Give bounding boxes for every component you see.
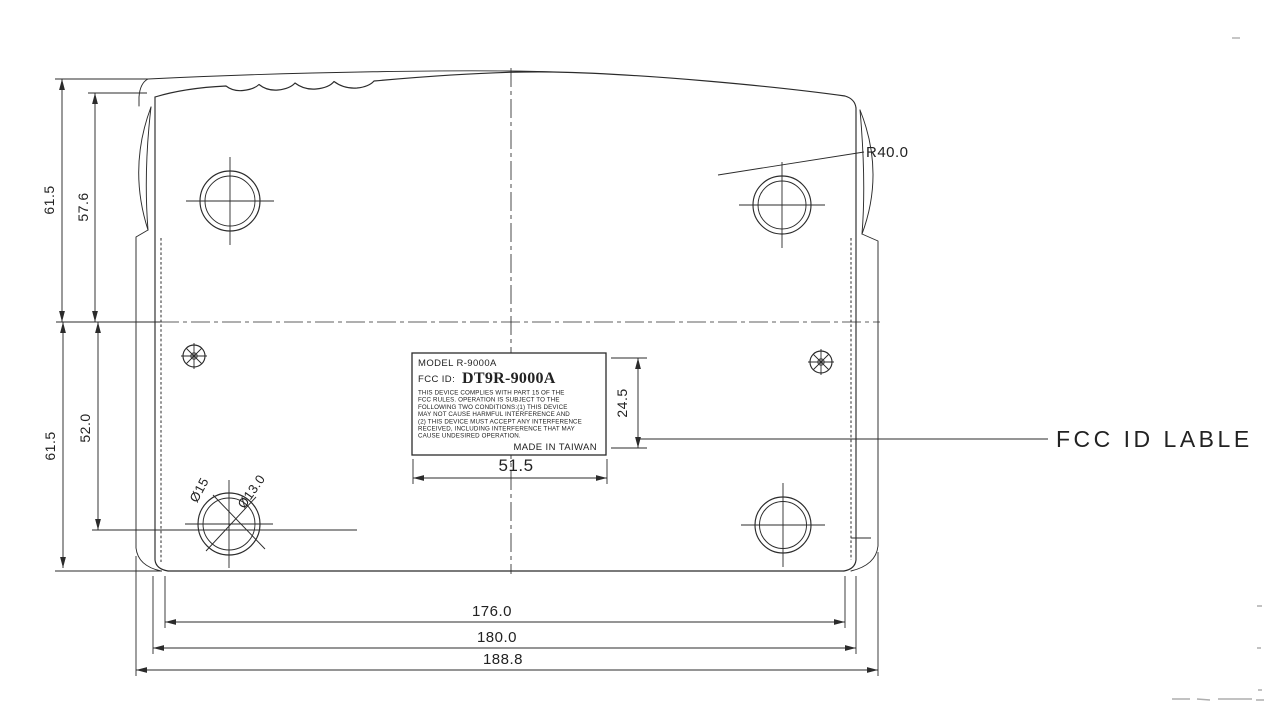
- fcc-id-label: MODEL R-9000A FCC ID: DT9R-9000A THIS DE…: [412, 353, 606, 455]
- label-compliance-line: THIS DEVICE COMPLIES WITH PART 15 OF THE: [418, 390, 565, 397]
- dimension-text: 188.8: [483, 651, 523, 668]
- corner-radius-callout: R40.0: [718, 144, 909, 175]
- foot-boss-top-right: [739, 162, 825, 248]
- dimension-text: 176.0: [472, 603, 512, 620]
- scan-artifacts: [1172, 38, 1264, 700]
- label-compliance-line: FOLLOWING TWO CONDITIONS:(1) THIS DEVICE: [418, 404, 567, 411]
- technical-drawing: Ø15 Ø13.0 MODEL R-9000A FCC ID: DT9R-900…: [0, 0, 1264, 702]
- crosshair: [186, 157, 274, 245]
- right-side-bump-chord: [860, 110, 864, 234]
- leader-line: [718, 152, 864, 175]
- dimension-text: 180.0: [477, 629, 517, 646]
- device-right-edge: [844, 108, 856, 571]
- fcc-label-callout: FCC ID LABLE: [638, 426, 1253, 452]
- device-top-edge: [155, 72, 856, 108]
- foot-outer-diameter-text: Ø15: [186, 475, 211, 505]
- right-outer-silhouette: [851, 234, 878, 571]
- dim-upper-half-outer: 61.5: [41, 79, 148, 322]
- label-fcc-id-value: DT9R-9000A: [462, 370, 556, 387]
- screw-right: [808, 349, 834, 375]
- screw-left: [181, 343, 207, 369]
- label-origin-line: MADE IN TAIWAN: [513, 442, 597, 453]
- dim-width-inner: 176.0: [165, 576, 845, 628]
- label-model-line: MODEL R-9000A: [418, 358, 497, 369]
- dim-lower-half-outer: 61.5: [42, 322, 162, 571]
- label-compliance-line: CAUSE UNDESIRED OPERATION.: [418, 433, 521, 440]
- screw-cross: [181, 343, 207, 369]
- scan-artifact: [1257, 606, 1262, 690]
- corner-radius-text: R40.0: [866, 144, 909, 161]
- dimension-text: 51.5: [498, 456, 533, 475]
- dim-label-height: 24.5: [611, 358, 647, 448]
- label-compliance-line: FCC RULES. OPERATION IS SUBJECT TO THE: [418, 397, 560, 404]
- dimension-text: 52.0: [77, 413, 93, 442]
- crosshair: [739, 162, 825, 248]
- dimension-text: 24.5: [614, 388, 630, 417]
- dim-label-width: 51.5: [413, 456, 607, 484]
- dimension-text: 61.5: [42, 431, 58, 460]
- device-top-left-corner: [139, 79, 148, 106]
- scan-artifact: [1172, 699, 1264, 700]
- foot-inner-diameter-text: Ø13.0: [234, 472, 268, 511]
- device-top-outer-edge: [148, 71, 553, 79]
- dimension-text: 57.6: [75, 192, 91, 221]
- centerlines: [56, 68, 880, 574]
- extension-line: [165, 576, 845, 628]
- dimension-text: 61.5: [41, 185, 57, 214]
- foot-boss-bottom-left: Ø15 Ø13.0: [185, 472, 273, 568]
- left-outer-silhouette: [136, 230, 161, 571]
- crosshair: [741, 483, 825, 567]
- foot-boss-top-left: [186, 157, 274, 245]
- foot-boss-bottom-right: [741, 483, 825, 567]
- label-compliance-line: MAY NOT CAUSE HARMFUL INTERFERENCE AND: [418, 411, 570, 418]
- screw-cross: [808, 349, 834, 375]
- label-fcc-id-prefix: FCC ID:: [418, 374, 455, 385]
- label-compliance-line: (2) THIS DEVICE MUST ACCEPT ANY INTERFER…: [418, 418, 582, 425]
- left-side-bump-chord: [146, 107, 151, 230]
- fcc-label-callout-text: FCC ID LABLE: [1056, 426, 1253, 452]
- label-compliance-line: RECEIVED, INCLUDING INTERFERENCE THAT MA…: [418, 426, 575, 433]
